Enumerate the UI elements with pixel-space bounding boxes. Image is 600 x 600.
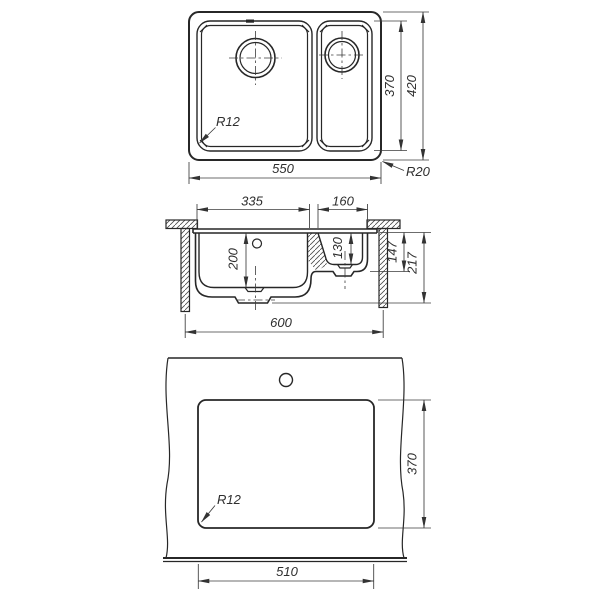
cabinet-panel-right <box>379 229 388 308</box>
countertop-panel <box>163 358 407 562</box>
dim-small-bowl-width: 160 <box>318 194 368 229</box>
section-view: 335 160 200 130 147 217 600 <box>166 194 431 339</box>
dim-cutout-width: 510 <box>198 564 373 589</box>
dim-label-bowl-area-depth: 370 <box>382 74 397 96</box>
countertop-section-right <box>367 220 400 229</box>
dim-label-main-bowl-width: 335 <box>241 194 263 209</box>
top-view: 550 370 420 R12 R20 <box>189 12 431 184</box>
countertop-break-line-left <box>165 358 169 558</box>
dim-label-overall-height: 217 <box>405 251 420 274</box>
faucet-hole <box>280 374 293 387</box>
cutout-view: 510 370 R12 <box>163 358 431 589</box>
dim-label-small-bowl-depth: 130 <box>330 236 345 258</box>
countertop-section-left <box>166 220 198 229</box>
callout-cutout-radius: R12 <box>202 492 242 522</box>
callout-rim-radius: R20 <box>383 162 431 180</box>
dim-label-base-cabinet-width: 600 <box>270 315 292 330</box>
dim-base-cabinet-width: 600 <box>185 310 383 338</box>
sink-rim-flange <box>193 229 377 233</box>
overflow-mark <box>246 20 254 23</box>
dim-bowl-area-depth: 370 <box>374 21 407 151</box>
callout-bowl-radius: R12 <box>200 114 241 143</box>
dim-small-bowl-depth: 130 <box>330 233 351 265</box>
sink-profile <box>193 229 377 313</box>
sink-technical-drawing: 550 370 420 R12 R20 <box>0 0 600 600</box>
dim-label-overall-width: 550 <box>272 161 294 176</box>
dim-label-small-bowl-width: 160 <box>332 194 354 209</box>
cutout-outline <box>198 400 374 528</box>
label-bowl-corner-radius: R12 <box>216 114 241 129</box>
main-bowl <box>197 20 312 152</box>
dim-main-bowl-depth: 200 <box>226 233 247 288</box>
dim-main-bowl-width: 335 <box>197 194 310 229</box>
overflow-hole-section <box>253 239 262 248</box>
label-rim-corner-radius: R20 <box>406 164 431 179</box>
dim-overall-width: 550 <box>189 161 381 184</box>
sink-outer-rim <box>189 12 381 160</box>
small-bowl-outer-edge <box>317 21 372 151</box>
dim-overall-height: 217 <box>272 233 431 304</box>
dim-label-overall-depth: 420 <box>404 74 419 96</box>
cabinet-panel-left <box>181 229 190 312</box>
small-drain-centerlines <box>319 31 365 79</box>
small-bowl-corner-mitres <box>320 25 369 147</box>
dim-label-cutout-depth: 370 <box>405 452 420 474</box>
label-cutout-corner-radius: R12 <box>217 492 242 507</box>
dim-label-main-bowl-depth: 200 <box>226 247 241 270</box>
main-bowl-outer-edge <box>197 21 312 151</box>
dim-label-small-bowl-height: 147 <box>385 240 400 262</box>
dim-label-cutout-width: 510 <box>276 564 298 579</box>
small-bowl <box>317 21 372 151</box>
